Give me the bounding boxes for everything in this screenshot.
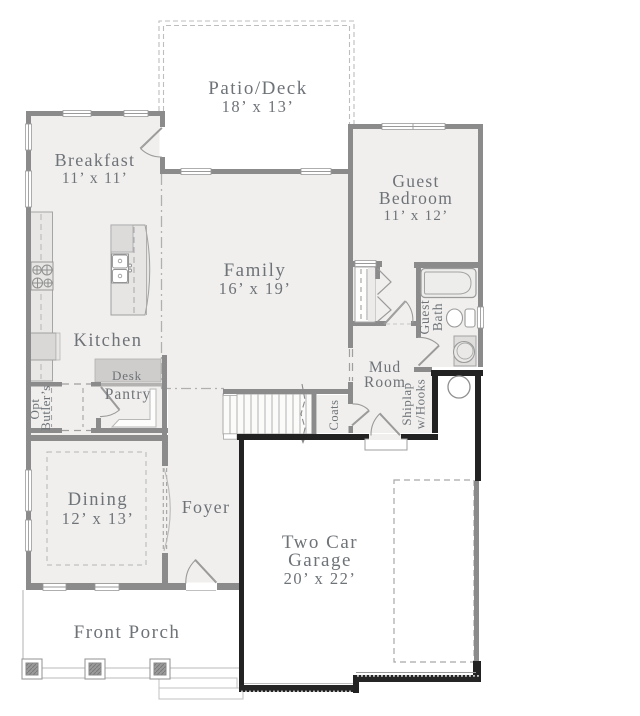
svg-text:Desk: Desk bbox=[112, 368, 142, 383]
svg-text:Foyer: Foyer bbox=[182, 497, 231, 517]
svg-text:11’ x 12’: 11’ x 12’ bbox=[383, 208, 448, 224]
svg-text:Patio/Deck: Patio/Deck bbox=[208, 78, 307, 99]
svg-text:Bedroom: Bedroom bbox=[379, 188, 453, 208]
svg-text:Front Porch: Front Porch bbox=[74, 622, 181, 643]
svg-text:Butler’s: Butler’s bbox=[38, 385, 53, 431]
svg-text:w/Hooks: w/Hooks bbox=[413, 379, 428, 429]
svg-text:Pantry: Pantry bbox=[105, 386, 151, 403]
svg-text:Dining: Dining bbox=[68, 490, 128, 510]
svg-text:16’ x 19’: 16’ x 19’ bbox=[219, 279, 292, 298]
svg-text:Family: Family bbox=[224, 260, 287, 281]
svg-text:11’ x 11’: 11’ x 11’ bbox=[62, 170, 128, 187]
svg-text:18’ x 13’: 18’ x 13’ bbox=[222, 97, 295, 116]
svg-text:Bath: Bath bbox=[430, 303, 445, 331]
svg-text:Garage: Garage bbox=[288, 550, 352, 571]
svg-text:20’ x 22’: 20’ x 22’ bbox=[284, 569, 357, 588]
svg-text:Breakfast: Breakfast bbox=[55, 150, 136, 170]
svg-text:12’ x 13’: 12’ x 13’ bbox=[62, 509, 135, 528]
svg-text:Kitchen: Kitchen bbox=[73, 331, 142, 351]
svg-text:Coats: Coats bbox=[327, 400, 341, 431]
